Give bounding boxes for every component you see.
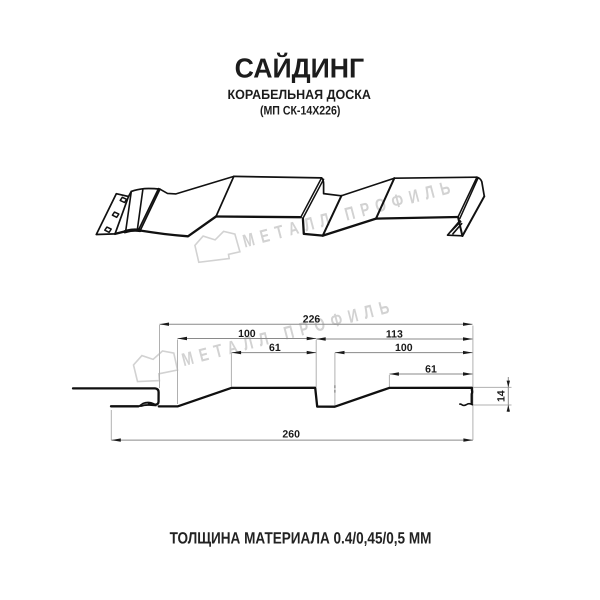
- svg-text:(МП СК-14Х226): (МП СК-14Х226): [260, 104, 341, 118]
- svg-text:260: 260: [282, 428, 300, 440]
- svg-text:100: 100: [395, 342, 413, 354]
- svg-text:226: 226: [303, 314, 321, 326]
- svg-text:КОРАБЕЛЬНАЯ ДОСКА: КОРАБЕЛЬНАЯ ДОСКА: [228, 87, 372, 102]
- svg-text:14: 14: [496, 390, 508, 402]
- svg-text:САЙДИНГ: САЙДИНГ: [235, 53, 365, 84]
- svg-text:61: 61: [269, 342, 281, 354]
- svg-text:100: 100: [238, 328, 256, 340]
- svg-text:61: 61: [425, 363, 437, 375]
- svg-text:113: 113: [386, 328, 403, 340]
- svg-text:ТОЛЩИНА МАТЕРИАЛА 0.4/0,45/0,5: ТОЛЩИНА МАТЕРИАЛА 0.4/0,45/0,5 ММ: [170, 530, 432, 548]
